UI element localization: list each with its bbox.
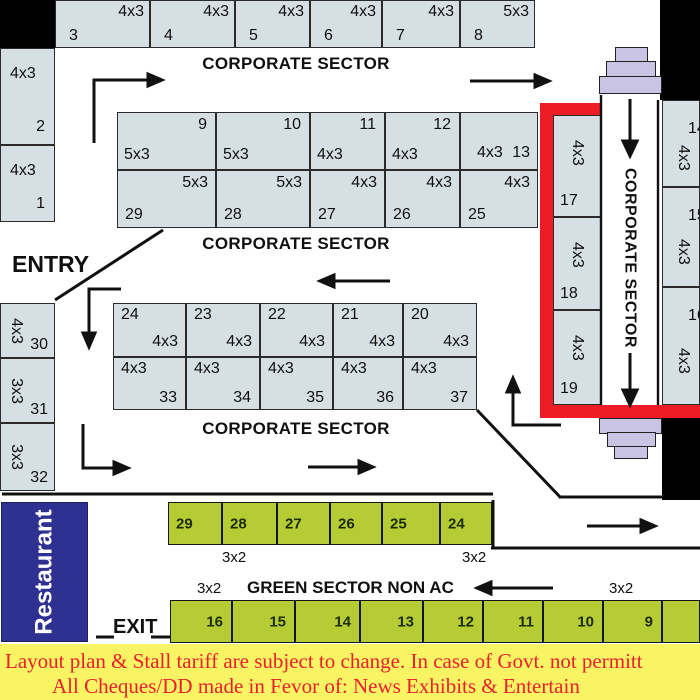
green-stall-10: 10 xyxy=(543,600,603,643)
stall-size-label: 4x3 xyxy=(351,175,377,191)
entry-label: ENTRY xyxy=(12,251,89,278)
stall-size-label: 4x3 xyxy=(369,334,395,350)
stall-size-label: 4x3 xyxy=(675,145,691,171)
podium-step-icon xyxy=(607,432,656,447)
stall-number: 6 xyxy=(324,28,333,44)
stall-size-label: 4x3 xyxy=(299,334,325,350)
stall-27: 274x3 xyxy=(310,170,385,228)
stall-size-label: 4x3 xyxy=(278,4,304,20)
stall-number: 28 xyxy=(224,207,242,223)
stall-6: 64x3 xyxy=(310,0,382,48)
stall-10: 105x3 xyxy=(216,112,310,170)
green-stall-12: 12 xyxy=(423,600,483,643)
stall-number: 37 xyxy=(450,390,468,406)
stall-2: 24x3 xyxy=(0,48,55,145)
restaurant-block: Restaurant xyxy=(1,502,88,642)
stall-36: 364x3 xyxy=(333,357,403,410)
green-stall-15: 15 xyxy=(232,600,295,643)
stall-20: 204x3 xyxy=(403,303,477,357)
corporate-sector-label: CORPORATE SECTOR xyxy=(166,54,426,74)
stall-17: 174x3 xyxy=(553,115,601,217)
corporate-sector-label: CORPORATE SECTOR xyxy=(166,234,426,254)
stall-size-label: 5x3 xyxy=(124,147,150,163)
size-3x2-label: 3x2 xyxy=(462,549,486,566)
stall-28: 285x3 xyxy=(216,170,310,228)
size-3x2-label: 3x2 xyxy=(609,580,633,597)
stall-number: 15 xyxy=(269,614,286,629)
stall-number: 2 xyxy=(36,119,45,135)
stall-14: 144x3 xyxy=(662,100,700,187)
stall-number: 34 xyxy=(233,390,251,406)
stall-number: 26 xyxy=(338,516,355,531)
stall-number: 19 xyxy=(560,381,578,397)
stall-size-label: 4x3 xyxy=(392,147,418,163)
stall-number: 18 xyxy=(560,286,578,302)
corridor-arrow-down-icon xyxy=(623,353,637,405)
stall-33: 334x3 xyxy=(113,357,186,410)
green-stall-9: 9 xyxy=(603,600,662,643)
green-stall-25: 25 xyxy=(382,502,440,545)
podium-step-icon xyxy=(599,76,662,94)
green-stall-28: 28 xyxy=(222,502,277,545)
stall-size-label: 4x3 xyxy=(317,147,343,163)
stall-size-label: 3x3 xyxy=(8,444,24,470)
green-stall-11: 11 xyxy=(483,600,543,643)
stall-number: 23 xyxy=(194,307,212,323)
stall-7: 74x3 xyxy=(382,0,460,48)
stall-size-label: 5x3 xyxy=(276,175,302,191)
green-stall-14: 14 xyxy=(295,600,360,643)
stall-number: 10 xyxy=(577,614,594,629)
green-sector-label: GREEN SECTOR NON AC xyxy=(247,578,454,598)
arrow-elbow-right-icon xyxy=(83,424,128,474)
stall-number: 13 xyxy=(512,145,530,161)
green-stall-partial xyxy=(662,600,700,643)
stall-size-label: 4x3 xyxy=(341,361,367,377)
stall-19: 194x3 xyxy=(553,310,601,405)
stall-size-label: 3x3 xyxy=(8,378,24,404)
arrow-right-icon xyxy=(308,461,373,473)
stall-number: 17 xyxy=(560,193,578,209)
stall-size-label: 5x3 xyxy=(182,175,208,191)
stall-size-label: 4x3 xyxy=(226,334,252,350)
red-boundary-top xyxy=(540,103,602,115)
stall-34: 344x3 xyxy=(186,357,260,410)
stall-number: 11 xyxy=(359,117,376,133)
stall-number: 33 xyxy=(159,390,177,406)
stall-number: 5 xyxy=(249,28,258,44)
arrow-right-icon xyxy=(470,75,549,87)
stall-number: 31 xyxy=(30,402,48,418)
green-stall-16: 16 xyxy=(170,600,232,643)
stall-37: 374x3 xyxy=(403,357,477,410)
notice-bar: Layout plan & Stall tariff are subject t… xyxy=(0,644,700,700)
stall-size-label: 4x3 xyxy=(675,348,691,374)
stall-26: 264x3 xyxy=(385,170,460,228)
stall-size-label: 4x3 xyxy=(675,239,691,265)
stall-number: 11 xyxy=(518,614,534,629)
podium-step-icon xyxy=(614,446,648,459)
stall-size-label: 4x3 xyxy=(10,66,36,82)
stall-size-label: 4x3 xyxy=(350,4,376,20)
stall-30: 304x3 xyxy=(0,303,55,358)
stall-number: 1 xyxy=(36,196,45,212)
stall-number: 28 xyxy=(230,516,247,531)
exit-label: EXIT xyxy=(113,616,157,639)
void-top-right xyxy=(660,0,700,100)
stall-size-label: 5x3 xyxy=(223,147,249,163)
stall-size-label: 4x3 xyxy=(203,4,229,20)
green-stall-29: 29 xyxy=(168,502,222,545)
stall-size-label: 4x3 xyxy=(426,175,452,191)
exhibition-floor-plan: 34x344x354x364x374x385x324x314x395x3105x… xyxy=(0,0,700,700)
green-stall-27: 27 xyxy=(277,502,330,545)
stall-11: 114x3 xyxy=(310,112,385,170)
stall-number: 22 xyxy=(268,307,286,323)
stall-22: 224x3 xyxy=(260,303,333,357)
arrow-left-icon xyxy=(477,582,553,594)
notice-line-2: All Cheques/DD made in Fevor of: News Ex… xyxy=(52,676,580,697)
stall-9: 95x3 xyxy=(117,112,216,170)
arrow-right-icon xyxy=(587,520,655,532)
stall-number: 9 xyxy=(645,614,653,629)
stall-23: 234x3 xyxy=(186,303,260,357)
stall-size-label: 4x3 xyxy=(152,334,178,350)
stall-4: 44x3 xyxy=(150,0,235,48)
stall-size-label: 4x3 xyxy=(121,361,147,377)
stall-size-label: 4x3 xyxy=(428,4,454,20)
stall-size-label: 4x3 xyxy=(569,140,585,166)
stall-35: 354x3 xyxy=(260,357,333,410)
stall-number: 29 xyxy=(125,207,143,223)
stall-number: 4 xyxy=(164,28,173,44)
size-3x2-label: 3x2 xyxy=(197,580,221,597)
stall-number: 27 xyxy=(318,207,336,223)
corporate-sector-corridor-label: CORPORATE SECTOR xyxy=(601,158,658,358)
stall-number: 13 xyxy=(397,614,414,629)
stall-size-label: 4x3 xyxy=(569,335,585,361)
stall-3: 34x3 xyxy=(55,0,150,48)
corporate-sector-label: CORPORATE SECTOR xyxy=(166,419,426,439)
stall-number: 3 xyxy=(69,28,78,44)
stall-31: 313x3 xyxy=(0,358,55,423)
stall-size-label: 4x3 xyxy=(194,361,220,377)
stall-size-label: 4x3 xyxy=(411,361,437,377)
stall-number: 27 xyxy=(285,516,302,531)
stall-size-label: 4x3 xyxy=(268,361,294,377)
stall-number: 10 xyxy=(283,117,301,133)
stall-number: 29 xyxy=(176,516,193,531)
stall-number: 14 xyxy=(334,614,351,629)
stall-number: 26 xyxy=(393,207,411,223)
stall-number: 24 xyxy=(448,516,465,531)
stall-number: 15 xyxy=(688,208,700,224)
red-boundary-left xyxy=(540,103,553,418)
stall-number: 35 xyxy=(306,390,324,406)
notice-line-1: Layout plan & Stall tariff are subject t… xyxy=(5,651,643,672)
stall-number: 7 xyxy=(396,28,405,44)
stall-number: 24 xyxy=(121,307,139,323)
green-stall-24: 24 xyxy=(440,502,492,545)
stall-number: 16 xyxy=(206,614,223,629)
green-stall-26: 26 xyxy=(330,502,382,545)
stall-number: 16 xyxy=(688,308,700,324)
stall-number: 14 xyxy=(688,121,700,137)
stall-number: 25 xyxy=(468,207,486,223)
stall-size-label: 5x3 xyxy=(503,4,529,20)
stall-number: 32 xyxy=(30,470,48,486)
stall-size-label: 4x3 xyxy=(569,242,585,268)
stall-number: 36 xyxy=(376,390,394,406)
stall-29: 295x3 xyxy=(117,170,216,228)
stall-number: 21 xyxy=(341,307,359,323)
stall-size-label: 4x3 xyxy=(504,175,530,191)
stall-16: 164x3 xyxy=(662,287,700,405)
stall-32: 323x3 xyxy=(0,423,55,491)
stall-13: 134x3 xyxy=(460,112,538,170)
stall-size-label: 4x3 xyxy=(118,4,144,20)
stall-21: 214x3 xyxy=(333,303,403,357)
stall-size-label: 4x3 xyxy=(477,145,503,161)
walkway-diagonal xyxy=(477,410,561,498)
stall-1: 14x3 xyxy=(0,145,55,222)
stall-number: 9 xyxy=(198,117,207,133)
stall-number: 12 xyxy=(433,117,451,133)
stall-size-label: 4x3 xyxy=(8,318,24,344)
corridor-arrow-down-icon xyxy=(623,99,637,156)
stall-5: 54x3 xyxy=(235,0,310,48)
stall-18: 184x3 xyxy=(553,217,601,310)
stall-12: 124x3 xyxy=(385,112,460,170)
stall-number: 8 xyxy=(474,28,483,44)
void-top-left xyxy=(0,0,55,48)
stall-number: 20 xyxy=(411,307,429,323)
stall-8: 85x3 xyxy=(460,0,535,48)
arrow-left-icon xyxy=(320,275,390,287)
stall-number: 25 xyxy=(390,516,407,531)
void-bottom-right xyxy=(662,418,700,500)
stall-15: 154x3 xyxy=(662,187,700,287)
stall-24: 244x3 xyxy=(113,303,186,357)
red-boundary-bottom xyxy=(540,405,700,418)
stall-25: 254x3 xyxy=(460,170,538,228)
stall-number: 30 xyxy=(30,337,48,353)
size-3x2-label: 3x2 xyxy=(222,549,246,566)
stall-size-label: 4x3 xyxy=(443,334,469,350)
green-stall-13: 13 xyxy=(360,600,423,643)
stall-size-label: 4x3 xyxy=(10,163,36,179)
stall-number: 12 xyxy=(457,614,474,629)
corridor-label-text: CORPORATE SECTOR xyxy=(621,168,639,348)
restaurant-label: Restaurant xyxy=(31,509,59,634)
